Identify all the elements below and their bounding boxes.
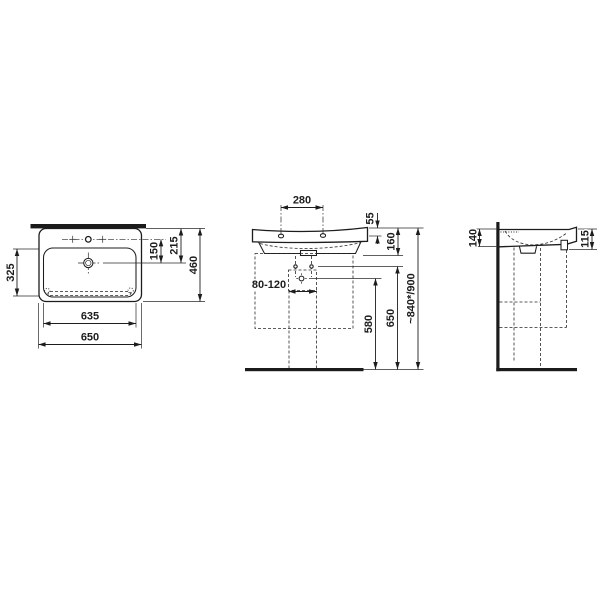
dim-label-rim-height: ~840*/900 <box>405 273 417 323</box>
dim-label-front-to-drain: 215 <box>169 236 181 254</box>
washbasin-dimension-drawing: 150 215 460 325 635 650 <box>0 0 600 600</box>
dim-label-rear-edge-height: 140 <box>467 229 479 247</box>
side-view: 140 115 <box>467 222 597 371</box>
drain-fitting <box>301 251 317 256</box>
top-view: 150 215 460 325 635 650 <box>5 224 205 349</box>
dim-label-tap-hole-spacing: 280 <box>293 195 311 207</box>
drain-hole <box>84 258 93 267</box>
drain-trap-profile <box>520 247 537 254</box>
fixing-hole-left <box>278 234 283 238</box>
dim-label-waste-height: 580 <box>363 315 375 333</box>
basin-bowl-outline <box>44 248 137 297</box>
hidden-bowl-profile <box>505 231 566 245</box>
dim-label-tap-to-drain: 150 <box>148 242 160 260</box>
wall-line <box>496 222 499 371</box>
floor-line-side <box>496 368 577 371</box>
dim-label-waste-range: 80-120 <box>252 279 286 291</box>
tap-hole <box>86 237 92 243</box>
dim-label-bowl-width: 635 <box>81 311 99 323</box>
fixing-bolt-left <box>294 265 297 268</box>
front-view: 280 55 160 580 650 ~840*/900 80-120 <box>245 195 424 372</box>
dim-label-overall-width: 650 <box>81 332 99 344</box>
dim-label-apron-height: 160 <box>385 232 397 250</box>
dim-label-fixing-height: 650 <box>385 309 397 327</box>
dim-label-overall-depth: 460 <box>188 256 200 274</box>
hidden-cover-outline <box>255 254 353 329</box>
waste-outlet-mark <box>299 276 304 281</box>
overflow-outlet <box>561 240 568 250</box>
floor-line-front <box>245 368 364 371</box>
technical-drawing-canvas: 150 215 460 325 635 650 <box>0 0 600 600</box>
fixing-hole-right <box>320 234 325 238</box>
dim-label-front-edge-height: 115 <box>579 230 591 248</box>
hidden-bowl-line <box>260 243 360 249</box>
basin-rim-front <box>253 228 368 243</box>
dim-label-rim-to-tap-hole: 55 <box>364 212 376 224</box>
dim-label-bowl-depth: 325 <box>5 263 17 281</box>
wall-strip <box>31 224 147 228</box>
fixing-bolt-right <box>310 265 313 268</box>
